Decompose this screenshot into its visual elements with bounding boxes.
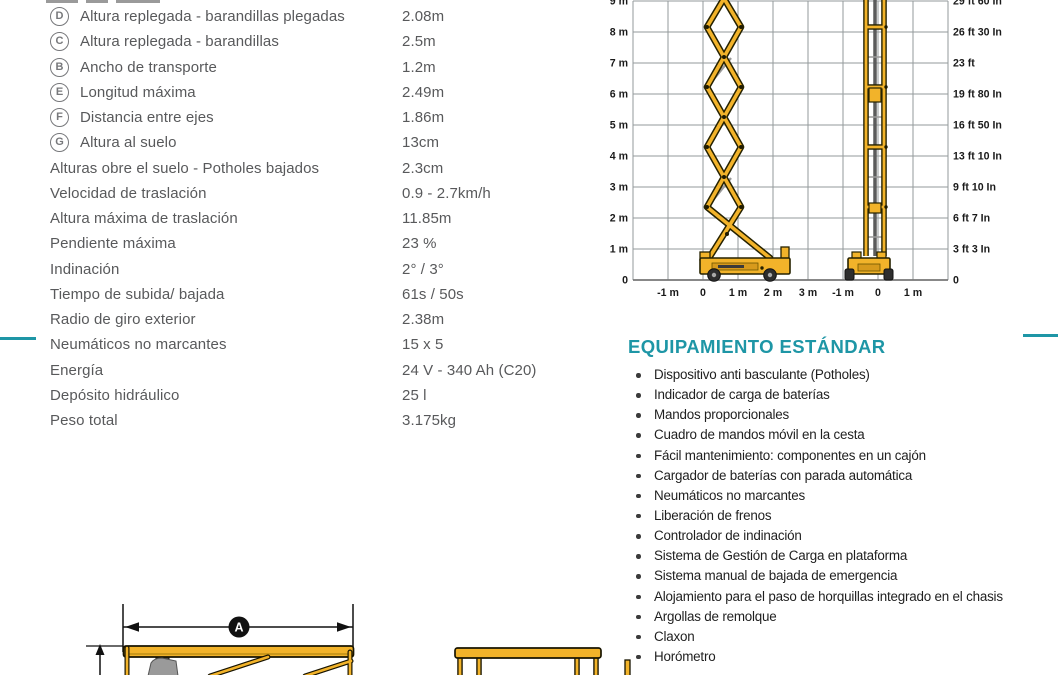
equipment-item: Cuadro de mandos móvil en la cesta bbox=[654, 427, 1052, 447]
folded-machine-side-view bbox=[124, 646, 354, 675]
spec-label: Altura replegada - barandillas bbox=[80, 33, 279, 50]
dimension-a-badge: A bbox=[229, 617, 250, 638]
spec-value: 3.175kg bbox=[402, 412, 456, 429]
front-view-machine bbox=[845, 0, 893, 280]
dimension-letter-badge: D bbox=[50, 7, 69, 26]
spec-value: 1.2m bbox=[402, 59, 436, 76]
spec-value: 2.08m bbox=[402, 8, 444, 25]
folded-machine-front-view bbox=[455, 648, 630, 675]
spec-value: 13cm bbox=[402, 134, 439, 151]
axis-label: 29 ft 60 In bbox=[953, 0, 1002, 8]
axis-label: 2 m bbox=[610, 213, 628, 225]
axis-label: 26 ft 30 In bbox=[953, 27, 1002, 39]
axis-label: 2 m bbox=[764, 287, 782, 299]
spec-row: Depósito hidráulico25 l bbox=[50, 383, 530, 408]
dimension-letter-badge: E bbox=[50, 83, 69, 102]
axis-label: 8 m bbox=[610, 27, 628, 39]
axis-label: 3 ft 3 In bbox=[953, 244, 990, 256]
spec-value: 2.3cm bbox=[402, 160, 443, 177]
dimension-letter-badge: B bbox=[50, 58, 69, 77]
width-axis-labels: -1 m01 m2 m3 m-1 m01 m bbox=[657, 287, 922, 299]
axis-label: 1 m bbox=[610, 244, 628, 256]
spec-label: Neumáticos no marcantes bbox=[50, 336, 227, 353]
axis-label: 1 m bbox=[904, 287, 922, 299]
spec-label: Indinación bbox=[50, 261, 119, 278]
axis-label: 9 ft 10 In bbox=[953, 182, 996, 194]
dimensions-diagram-svg: 9 m8 m7 m6 m5 m4 m3 m2 m1 m0 29 ft 60 In… bbox=[596, 0, 1058, 312]
spec-value: 25 l bbox=[402, 387, 427, 404]
footer-drawing-svg: A bbox=[55, 595, 645, 675]
equipment-section: EQUIPAMIENTO ESTÁNDAR Dispositivo anti b… bbox=[628, 336, 1052, 669]
spec-value: 15 x 5 bbox=[402, 336, 443, 353]
spec-label: Altura máxima de traslación bbox=[50, 210, 238, 227]
spec-label: Depósito hidráulico bbox=[50, 387, 179, 404]
spec-row: FDistancia entre ejes1.86m bbox=[50, 105, 530, 130]
equipment-item: Sistema manual de bajada de emergencia bbox=[654, 568, 1052, 588]
spec-row: Tiempo de subida/ bajada61s / 50s bbox=[50, 282, 530, 307]
spec-value: 2° / 3° bbox=[402, 261, 444, 278]
dimension-letter-badge: G bbox=[50, 133, 69, 152]
axis-label: 6 m bbox=[610, 89, 628, 101]
spec-row: BAncho de transporte1.2m bbox=[50, 55, 530, 80]
spec-value: 24 V - 340 Ah (C20) bbox=[402, 362, 536, 379]
dimension-a-label: A bbox=[234, 621, 243, 635]
spec-value: 23 % bbox=[402, 235, 437, 252]
axis-label: 1 m bbox=[729, 287, 747, 299]
spec-table: DAltura replegada - barandillas plegadas… bbox=[50, 4, 530, 433]
equipment-item: Cargador de baterías con parada automáti… bbox=[654, 468, 1052, 488]
spec-row: Energía24 V - 340 Ah (C20) bbox=[50, 358, 530, 383]
axis-label: 5 m bbox=[610, 120, 628, 132]
spec-label: Peso total bbox=[50, 412, 118, 429]
spec-value: 2.5m bbox=[402, 33, 436, 50]
spec-label: Distancia entre ejes bbox=[80, 109, 214, 126]
dimension-letter-badge: C bbox=[50, 32, 69, 51]
axis-label: 3 m bbox=[610, 182, 628, 194]
axis-label: 0 bbox=[953, 275, 959, 287]
spec-row: Alturas obre el suelo - Potholes bajados… bbox=[50, 156, 530, 181]
meters-axis-labels: 9 m8 m7 m6 m5 m4 m3 m2 m1 m0 bbox=[610, 0, 628, 287]
spec-row: GAltura al suelo13cm bbox=[50, 130, 530, 155]
cutoff-text-remnant bbox=[86, 0, 108, 3]
axis-label: 0 bbox=[875, 287, 881, 299]
spec-label: Altura al suelo bbox=[80, 134, 177, 151]
spec-row: Altura máxima de traslación11.85m bbox=[50, 206, 530, 231]
equipment-item: Alojamiento para el paso de horquillas i… bbox=[654, 589, 1052, 609]
spec-label: Longitud máxima bbox=[80, 84, 196, 101]
equipment-item: Argollas de remolque bbox=[654, 609, 1052, 629]
equipment-item: Indicador de carga de baterías bbox=[654, 387, 1052, 407]
spec-label: Altura replegada - barandillas plegadas bbox=[80, 8, 345, 25]
axis-label: 9 m bbox=[610, 0, 628, 8]
cutoff-text-remnant bbox=[46, 0, 78, 3]
spec-row: CAltura replegada - barandillas2.5m bbox=[50, 29, 530, 54]
equipment-list: Dispositivo anti basculante (Potholes)In… bbox=[628, 367, 1052, 669]
spec-row: Neumáticos no marcantes15 x 5 bbox=[50, 332, 530, 357]
spec-label: Energía bbox=[50, 362, 103, 379]
equipment-item: Fácil mantenimiento: componentes en un c… bbox=[654, 448, 1052, 468]
equipment-item: Mandos proporcionales bbox=[654, 407, 1052, 427]
spec-value: 2.38m bbox=[402, 311, 444, 328]
spec-value: 0.9 - 2.7km/h bbox=[402, 185, 491, 202]
axis-label: 0 bbox=[622, 275, 628, 287]
spec-label: Tiempo de subida/ bajada bbox=[50, 286, 224, 303]
axis-label: 16 ft 50 In bbox=[953, 120, 1002, 132]
axis-label: -1 m bbox=[832, 287, 854, 299]
spec-row: Radio de giro exterior2.38m bbox=[50, 307, 530, 332]
equipment-item: Claxon bbox=[654, 629, 1052, 649]
spec-row: Peso total3.175kg bbox=[50, 408, 530, 433]
spec-label: Pendiente máxima bbox=[50, 235, 176, 252]
axis-label: 4 m bbox=[610, 151, 628, 163]
spec-label: Ancho de transporte bbox=[80, 59, 217, 76]
arrowhead-left bbox=[125, 622, 139, 631]
spec-value: 11.85m bbox=[402, 210, 452, 227]
dimension-letter-badge: F bbox=[50, 108, 69, 127]
spec-label: Radio de giro exterior bbox=[50, 311, 196, 328]
axis-label: 7 m bbox=[610, 58, 628, 70]
spec-value: 61s / 50s bbox=[402, 286, 464, 303]
axis-label: 3 m bbox=[799, 287, 817, 299]
axis-label: 23 ft bbox=[953, 58, 975, 70]
spec-row: ELongitud máxima2.49m bbox=[50, 80, 530, 105]
cutoff-text-remnant bbox=[116, 0, 160, 3]
equipment-item: Controlador de indinación bbox=[654, 528, 1052, 548]
axis-label: 0 bbox=[700, 287, 706, 299]
equipment-item: Dispositivo anti basculante (Potholes) bbox=[654, 367, 1052, 387]
axis-label: 13 ft 10 In bbox=[953, 151, 1002, 163]
spec-value: 2.49m bbox=[402, 84, 444, 101]
equipment-title: EQUIPAMIENTO ESTÁNDAR bbox=[628, 336, 1052, 358]
side-view-machine bbox=[700, 0, 790, 281]
equipment-item: Neumáticos no marcantes bbox=[654, 488, 1052, 508]
spec-label: Alturas obre el suelo - Potholes bajados bbox=[50, 160, 319, 177]
spec-label: Velocidad de traslación bbox=[50, 185, 207, 202]
spec-row: DAltura replegada - barandillas plegadas… bbox=[50, 4, 530, 29]
axis-label: -1 m bbox=[657, 287, 679, 299]
axis-label: 6 ft 7 In bbox=[953, 213, 990, 225]
axis-label: 19 ft 80 In bbox=[953, 89, 1002, 101]
spec-row: Velocidad de traslación0.9 - 2.7km/h bbox=[50, 181, 530, 206]
equipment-item: Liberación de frenos bbox=[654, 508, 1052, 528]
spec-row: Indinación2° / 3° bbox=[50, 257, 530, 282]
page: { "page": { "kind": "scissor-lift specif… bbox=[0, 0, 1058, 675]
spec-row: Pendiente máxima23 % bbox=[50, 231, 530, 256]
feet-axis-labels: 29 ft 60 In26 ft 30 In23 ft19 ft 80 In16… bbox=[953, 0, 1002, 287]
spec-value: 1.86m bbox=[402, 109, 444, 126]
diagram-grid bbox=[633, 1, 948, 280]
arrowhead-right bbox=[337, 622, 351, 631]
teal-divider-left bbox=[0, 337, 36, 340]
equipment-item: Sistema de Gestión de Carga en plataform… bbox=[654, 548, 1052, 568]
equipment-item: Horómetro bbox=[654, 649, 1052, 669]
